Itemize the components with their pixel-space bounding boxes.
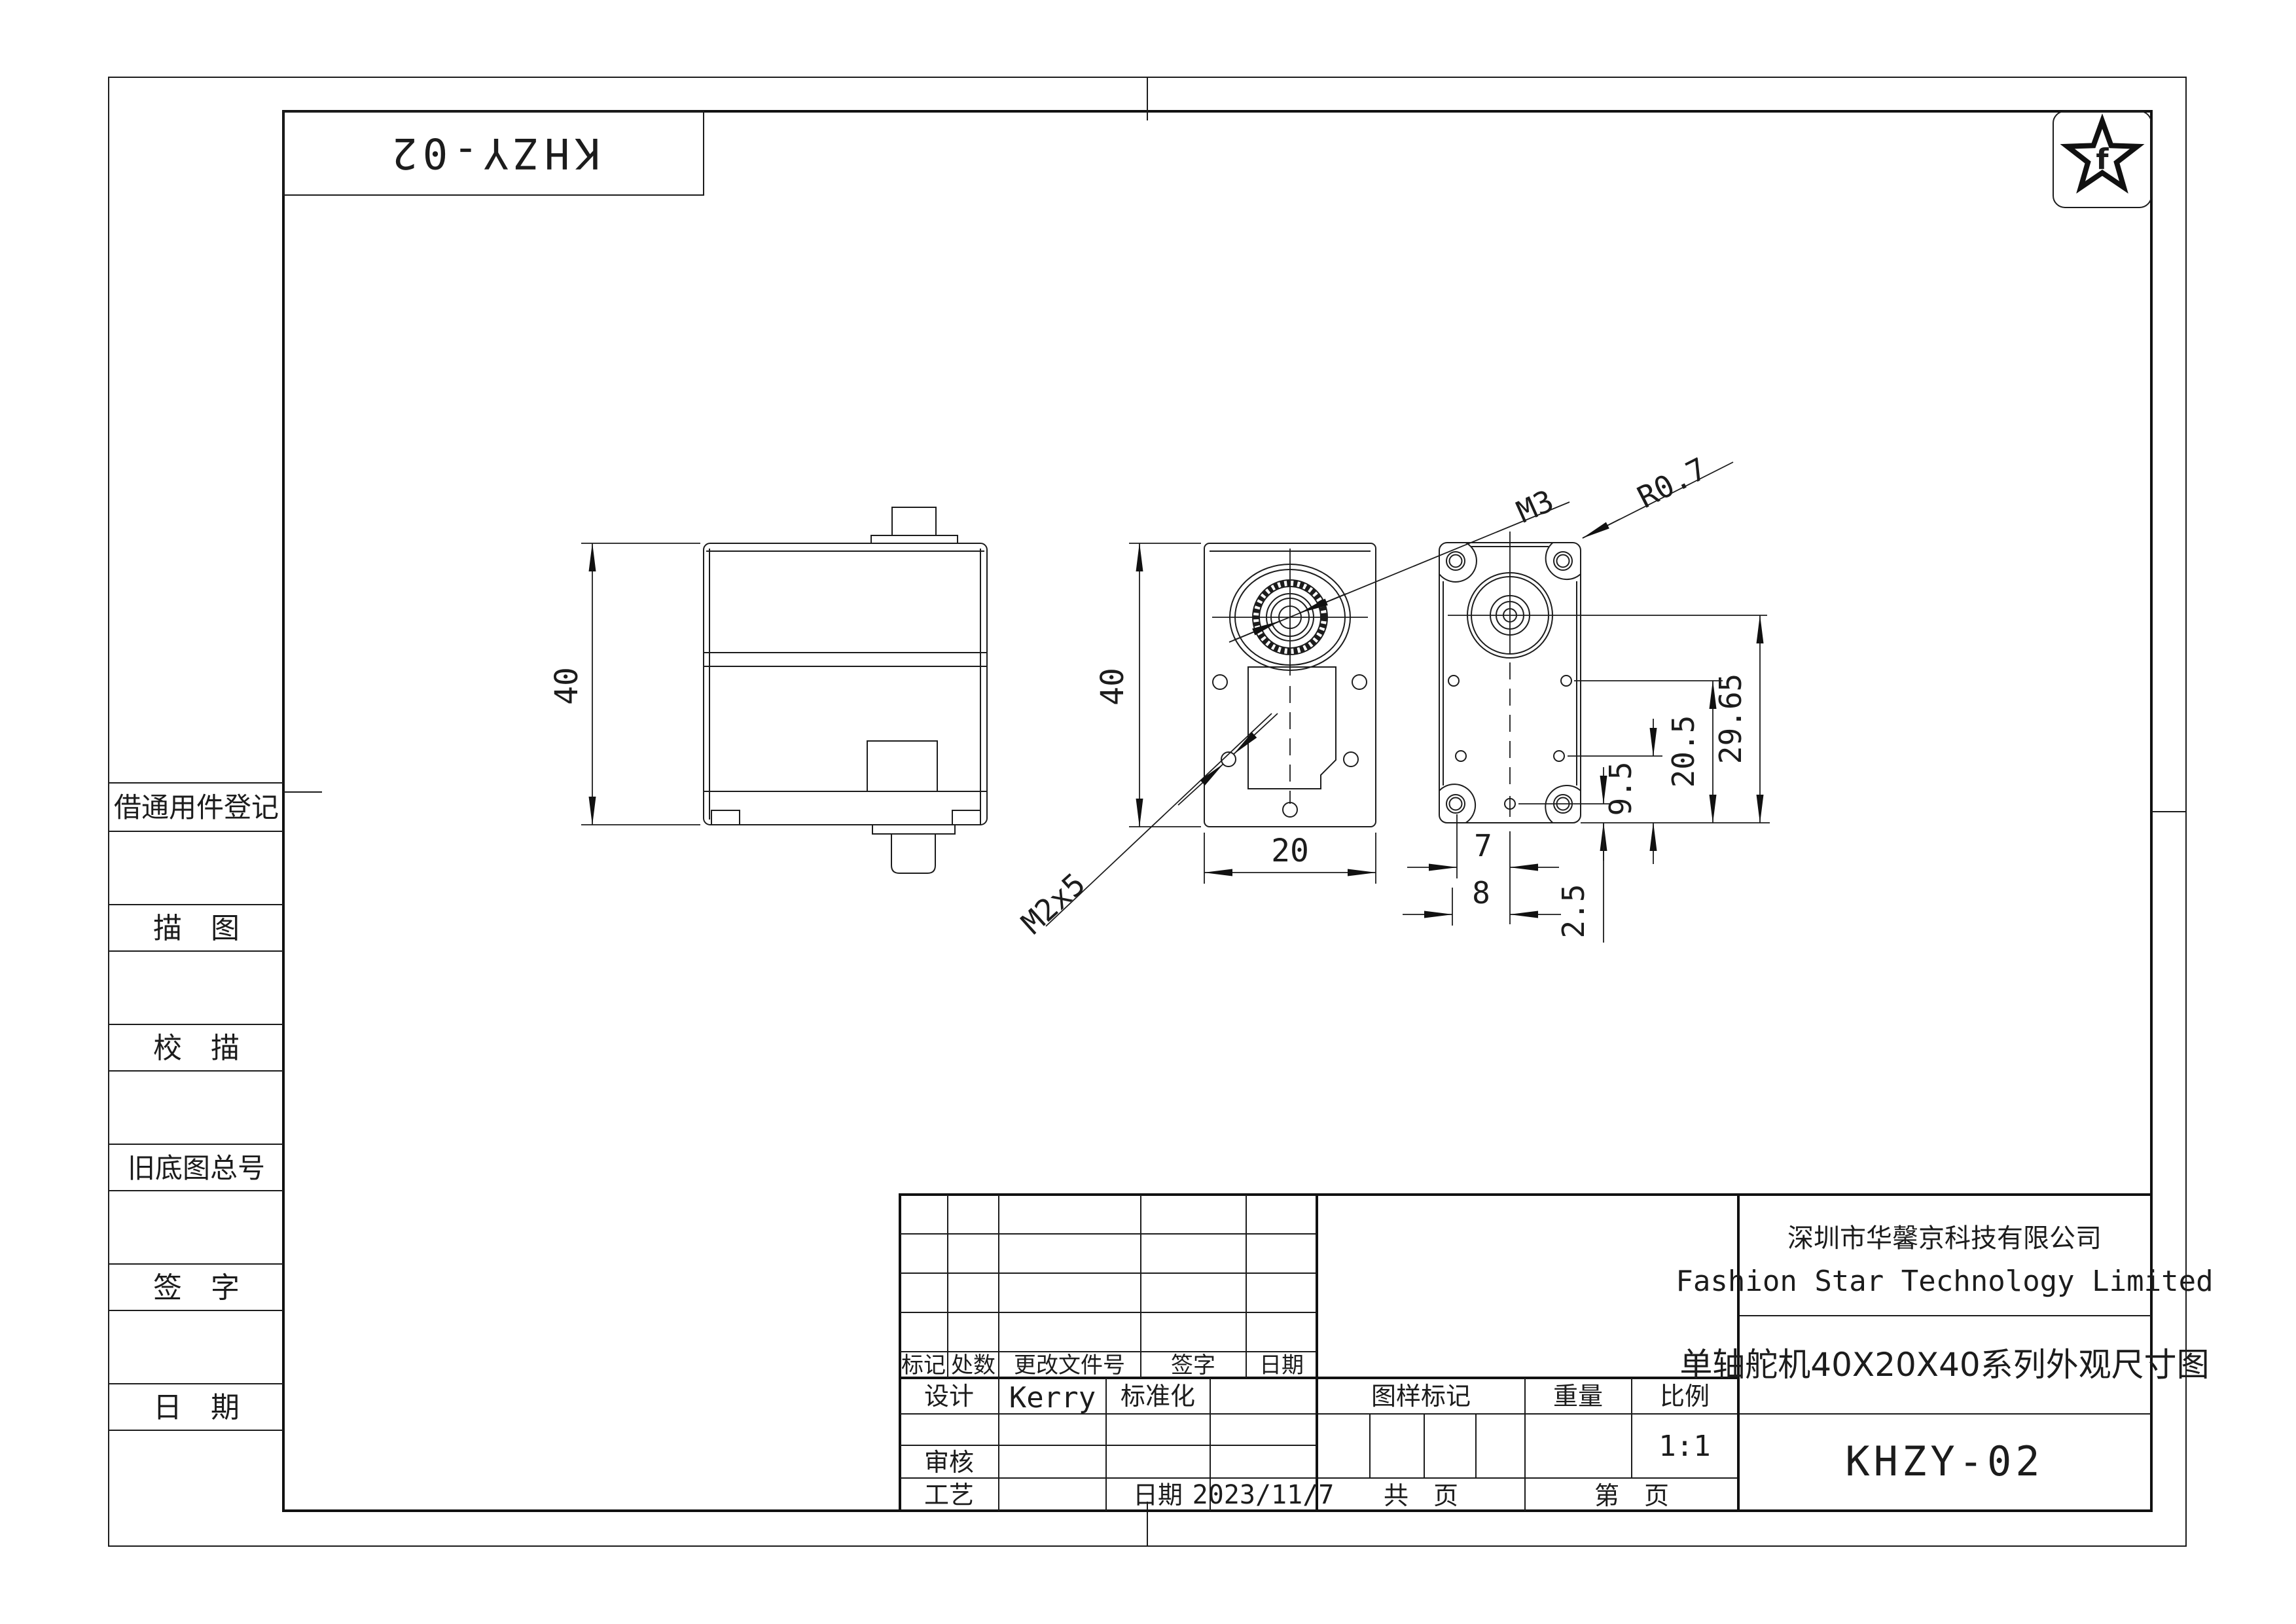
scale-value: 1:1 — [1659, 1430, 1710, 1463]
part-number: KHZY-02 — [1845, 1437, 2043, 1485]
design-label: 设计 — [924, 1382, 974, 1411]
date-value: 2023/11/7 — [1193, 1480, 1335, 1510]
designer-name: Kerry — [1009, 1381, 1096, 1415]
stamp-label: 图样标记 — [1371, 1382, 1471, 1411]
sidebar-label-borrow: 借通用件登记 — [114, 791, 279, 823]
hole — [1344, 752, 1358, 767]
body-outline — [704, 543, 987, 825]
dim-205: 20.5 — [1666, 715, 1701, 788]
weight-label: 重量 — [1553, 1382, 1603, 1411]
pages-total: 共 页 — [1384, 1481, 1458, 1510]
sidebar-label-trace: 描 图 — [153, 912, 240, 945]
sidebar-label-check: 校 描 — [153, 1032, 240, 1065]
dim-40-side: 40 — [548, 667, 585, 705]
dim-8: 8 — [1472, 875, 1490, 911]
dim-40-front: 40 — [1094, 668, 1131, 706]
spline-shaft — [892, 507, 936, 535]
connector-plug — [891, 834, 935, 873]
hole — [1213, 675, 1227, 689]
hole — [1352, 675, 1367, 689]
view-bottom: 29.65 20.5 9.5 2.5 7 8 R0.7 — [1403, 451, 1770, 943]
foot-left — [711, 810, 740, 825]
company-cn: 深圳市华馨京科技有限公司 — [1787, 1223, 2102, 1254]
sidebar-label-date: 日 期 — [153, 1391, 240, 1424]
m3-callout: M3 — [1229, 482, 1570, 642]
shaft-collar — [871, 535, 958, 543]
foot-right — [952, 810, 980, 825]
dim-7: 7 — [1474, 828, 1492, 863]
hole — [1448, 676, 1459, 686]
page-frame — [109, 77, 2186, 1546]
label-m2x5: M2x5 — [1014, 866, 1092, 941]
dim-20: 20 — [1271, 833, 1309, 869]
logo-letter: f — [2096, 143, 2109, 176]
shaft-circles — [1212, 549, 1368, 804]
r07-callout: R0.7 — [1583, 451, 1733, 538]
view-side: 40 — [548, 507, 987, 873]
rev-header-count: 处数 — [951, 1352, 996, 1379]
sidebar-table: 借通用件登记 描 图 校 描 旧底图总号 签 字 日 期 — [109, 783, 283, 1430]
company-en: Fashion Star Technology Limited — [1676, 1265, 2213, 1298]
process-label: 工艺 — [924, 1481, 974, 1509]
hole — [1554, 751, 1564, 761]
outer-border — [109, 77, 2186, 1546]
dim-2965: 29.65 — [1713, 674, 1748, 764]
rev-header-mark: 标记 — [901, 1352, 946, 1379]
hole — [1561, 676, 1571, 686]
pages-current: 第 页 — [1594, 1481, 1669, 1510]
view-front: M3 M2x5 40 20 — [1014, 482, 1570, 941]
rev-header-date: 日期 — [1259, 1352, 1304, 1379]
date-label: 日期 — [1133, 1481, 1183, 1509]
drawing-canvas: KHZY-02 f 借通用件登记 描 图 校 描 旧底图总号 签 字 日 期 — [0, 0, 2296, 1624]
hole — [1456, 751, 1466, 761]
logo-box: f — [2053, 111, 2151, 208]
hole — [1283, 803, 1297, 817]
scale-label: 比例 — [1660, 1382, 1710, 1411]
dim-25: 2.5 — [1556, 884, 1591, 938]
rev-header-file: 更改文件号 — [1014, 1352, 1125, 1379]
partnumber-top-text: KHZY-02 — [387, 128, 600, 177]
audit-label: 审核 — [924, 1448, 974, 1477]
title-block: 标记 处数 更改文件号 签字 日期 设计 Kerry 标准化 审核 工艺 日期 … — [900, 1195, 2214, 1511]
sidebar-label-oldno: 旧底图总号 — [128, 1152, 265, 1184]
rev-header-sign: 签字 — [1171, 1352, 1215, 1379]
label-r07: R0.7 — [1632, 451, 1712, 515]
drawing-sheet: KHZY-02 f 借通用件登记 描 图 校 描 旧底图总号 签 字 日 期 — [0, 0, 2296, 1624]
connector-plate — [872, 825, 955, 834]
sidebar-label-sign: 签 字 — [153, 1271, 240, 1305]
inner-frame — [283, 111, 2151, 1511]
connector-recess — [867, 741, 937, 791]
drawing-title: 单轴舵机40X20X40系列外观尺寸图 — [1679, 1346, 2209, 1384]
standard-label: 标准化 — [1121, 1382, 1195, 1411]
top-partnumber-box: KHZY-02 — [283, 111, 704, 195]
dim-95: 9.5 — [1603, 761, 1638, 816]
